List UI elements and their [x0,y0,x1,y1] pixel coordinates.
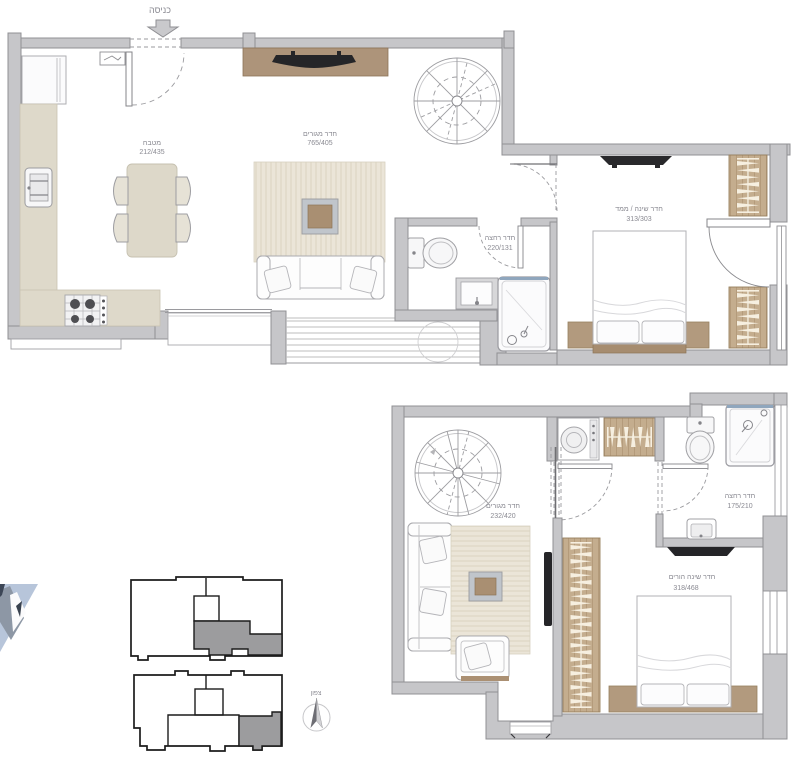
svg-text:318/468: 318/468 [673,585,698,592]
svg-text:חדר רחצה: חדר רחצה [485,235,516,242]
svg-text:212/435: 212/435 [139,149,164,156]
svg-text:כניסה: כניסה [149,5,171,15]
svg-text:חדר מגורים: חדר מגורים [303,131,337,138]
svg-text:מטבח: מטבח [143,140,161,147]
svg-text:חדר מגורים: חדר מגורים [486,503,520,510]
svg-text:חדר שינה / ממד: חדר שינה / ממד [615,206,663,213]
svg-text:צפון: צפון [311,690,322,697]
svg-text:חדר שינה הורים: חדר שינה הורים [669,574,716,581]
svg-text:175/210: 175/210 [727,503,752,510]
svg-text:220/131: 220/131 [487,245,512,252]
svg-text:232/420: 232/420 [490,513,515,520]
svg-text:765/405: 765/405 [307,140,332,147]
svg-text:313/303: 313/303 [626,216,651,223]
svg-text:חדר רחצה: חדר רחצה [725,493,756,500]
